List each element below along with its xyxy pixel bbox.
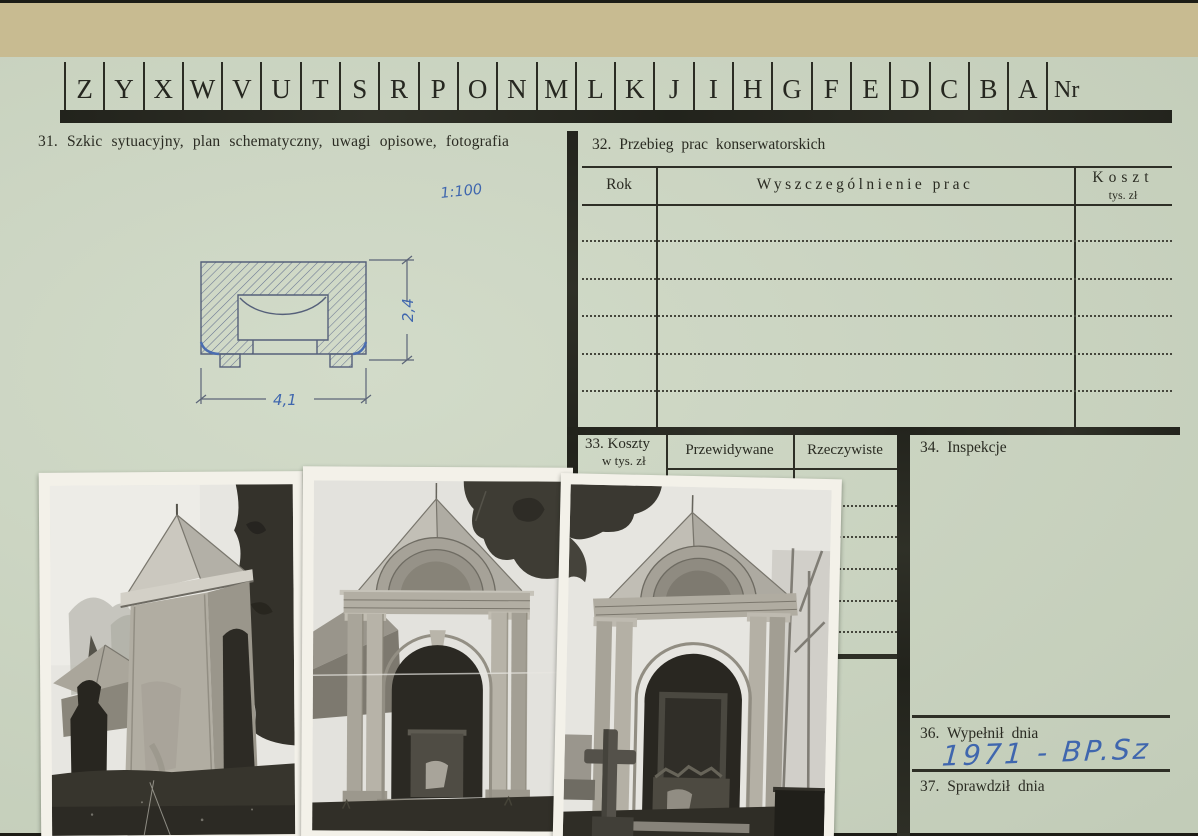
section-31-title: 31. Szkic sytuacyjny, plan schematyczny,… [38, 133, 509, 151]
alphabet-tab: Y [103, 62, 142, 110]
table32-col-koszt-sub: tys. zł [1074, 188, 1172, 203]
section-33-title-line1: 33. Koszty [585, 436, 650, 453]
alphabet-tab: K [614, 62, 653, 110]
scanned-record-card: ZYXWVUTSRPONMLKJIHGFEDCBA Nr 31. Szkic s… [0, 0, 1198, 836]
table33-col-przewidywane: Przewidywane [666, 442, 793, 459]
vertical-divider-right [897, 427, 910, 836]
section32-bottom-rule [567, 427, 1180, 435]
alphabet-tab: P [418, 62, 457, 110]
photo-chapel-side-view-image [50, 484, 295, 836]
alphabet-tab-row: ZYXWVUTSRPONMLKJIHGFEDCBA [64, 62, 1046, 110]
section-37-title: 37. Sprawdził dnia [920, 778, 1045, 796]
photo-chapel-side-view [39, 471, 306, 836]
alphabet-tab: T [300, 62, 339, 110]
section-34-title: 34. Inspekcje [920, 439, 1007, 457]
alphabet-tab: H [732, 62, 771, 110]
table32-empty-row [582, 353, 1172, 355]
table33-col-rzeczywiste: Rzeczywiste [793, 442, 897, 459]
alphabet-tab: F [811, 62, 850, 110]
alphabet-tab: N [496, 62, 535, 110]
photo-chapel-front-view-image [312, 480, 562, 831]
alphabet-tab: U [260, 62, 299, 110]
section-32-title: 32. Przebieg prac konserwatorskich [592, 136, 825, 154]
photo-chapel-front-view [301, 466, 573, 836]
alphabet-tab: R [378, 62, 417, 110]
table32-col-prace: Wyszczególnienie prac [656, 176, 1074, 194]
alphabet-tab: I [693, 62, 732, 110]
alphabet-tab: D [889, 62, 928, 110]
photo-chapel-angled-view-image [563, 484, 832, 836]
table32-empty-row [582, 315, 1172, 317]
alphabet-tab: W [182, 62, 221, 110]
backing-page-edge [0, 3, 1198, 57]
alphabet-tab: E [850, 62, 889, 110]
table32-empty-row [582, 390, 1172, 392]
table32-col-divider-2 [1074, 166, 1076, 427]
alphabet-tab: V [221, 62, 260, 110]
table32-empty-row [582, 278, 1172, 280]
section36-rule [912, 715, 1170, 718]
table32-empty-row [582, 240, 1172, 242]
table32-top-rule [582, 166, 1172, 168]
alphabet-tab: J [653, 62, 692, 110]
table32-col-koszt: Koszt [1074, 169, 1172, 187]
table32-col-rok: Rok [582, 176, 656, 194]
sketch-height-dimension: 2,4 [399, 298, 417, 322]
table33-header-rule [666, 468, 897, 470]
sketch-width-dimension: 4,1 [273, 391, 297, 409]
section-33-title-line2: w tys. zł [602, 453, 646, 469]
alphabet-tab-nr: Nr [1046, 62, 1096, 110]
table32-col-divider-1 [656, 166, 658, 427]
sketch-scale-note: 1:100 [440, 182, 483, 202]
alphabet-tab: B [968, 62, 1007, 110]
photo-chapel-angled-view [552, 473, 842, 836]
table32-header-rule [582, 204, 1172, 206]
alphabet-tab: C [929, 62, 968, 110]
alphabet-tab: S [339, 62, 378, 110]
alphabet-tab: X [143, 62, 182, 110]
alphabet-tab: A [1007, 62, 1046, 110]
alphabet-tab: O [457, 62, 496, 110]
alphabet-tab: G [771, 62, 810, 110]
header-rule [60, 110, 1172, 123]
alphabet-tab: M [536, 62, 575, 110]
situational-sketch: 4,1 2,4 1:100 [170, 172, 500, 432]
alphabet-tab: L [575, 62, 614, 110]
alphabet-tab: Z [64, 62, 103, 110]
